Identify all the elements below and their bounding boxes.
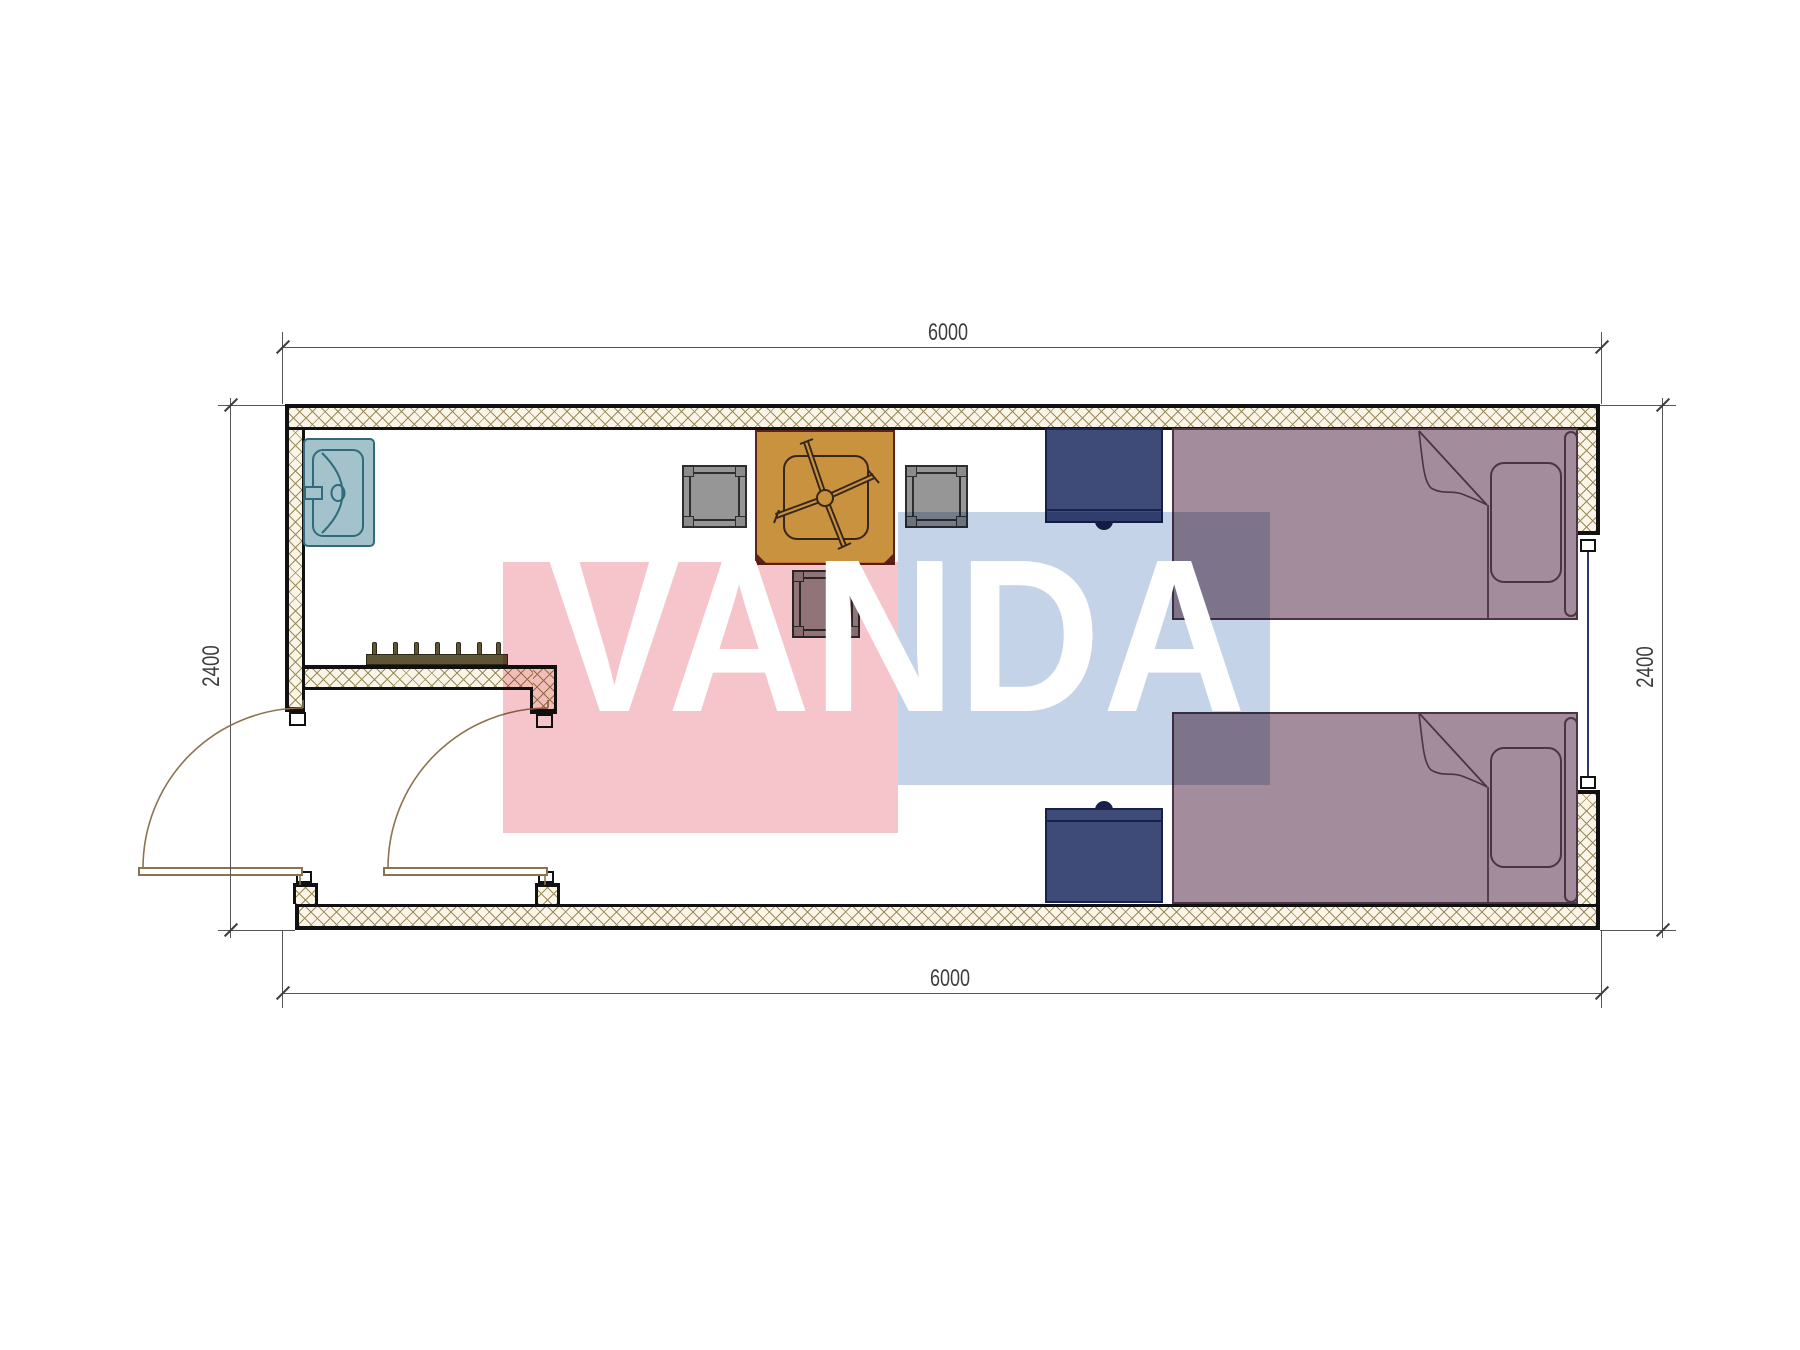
wall-bottom-post-2 [535,883,560,904]
dim-label-top: 6000 [928,321,968,345]
window-jamb-top [1580,539,1596,552]
coat-rack-symbol [366,642,508,666]
door-leaf-exterior [138,867,303,876]
sink-symbol [303,438,375,547]
floor-plan-canvas: 6000 6000 2400 2400 VANDA [0,0,1800,1350]
wall-top [285,404,1600,430]
nightstand-top-symbol [1045,428,1163,523]
wall-bottom [295,904,1600,930]
dim-ext-right-bottom [1600,930,1676,931]
dim-line-top [282,347,1602,348]
dim-ext-right-top [1600,405,1676,406]
dim-label-left: 2400 [200,645,224,687]
dim-line-right [1662,398,1663,938]
wall-vestibule-horizontal [305,665,533,690]
window-jamb-bottom [1580,776,1596,789]
door-swing-arc-exterior [143,700,303,885]
door-jamb-left-wall [289,712,306,726]
dim-line-left [230,398,231,938]
dim-line-bottom [282,993,1602,994]
pillow [1490,462,1562,583]
wall-left [285,430,305,712]
nightstand-bottom-symbol [1045,808,1163,903]
wall-bottom-post-1 [293,883,318,904]
dim-ext-bottom-left [282,930,283,1008]
dim-ext-bottom-right [1601,930,1602,1008]
watermark-text: VANDA [548,528,1248,746]
headboard [1564,717,1578,903]
dim-ext-top-right [1601,332,1602,404]
dim-label-bottom: 6000 [930,967,970,991]
dim-ext-top-left [282,332,283,404]
headboard [1564,431,1578,617]
window-glazing-line [1587,552,1589,776]
pillow [1490,747,1562,868]
coat-rack-bar [366,654,508,665]
door-leaf-vestibule [383,867,548,876]
dim-label-right: 2400 [1634,646,1658,688]
